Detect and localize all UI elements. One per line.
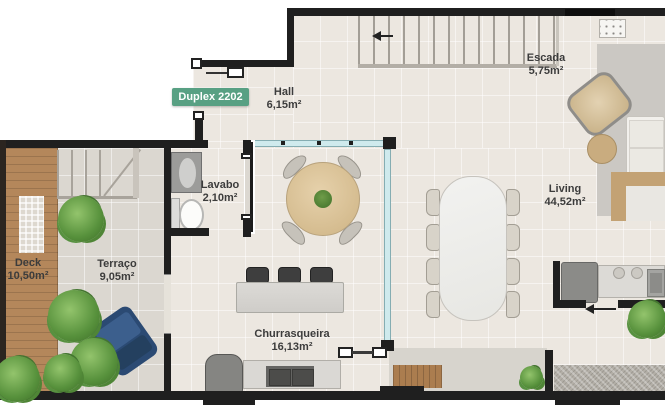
lavabo-door	[245, 158, 250, 219]
cooktop-inner	[650, 273, 662, 293]
room-name: Escada	[527, 52, 566, 65]
wall-left-top	[0, 140, 208, 148]
wall-hall-top	[193, 60, 294, 67]
wall-kitchen-stub	[553, 261, 560, 308]
room-label-terraco: Terraço 9,05m²	[97, 258, 137, 284]
wall-end-cap	[193, 111, 204, 120]
wood-bench	[393, 365, 442, 388]
room-label-lavabo: Lavabo 2,10m²	[201, 179, 240, 205]
glass-track-dot	[317, 141, 321, 145]
sink-basin	[292, 369, 314, 386]
wall-lavabo-bottom	[164, 228, 209, 236]
room-label-deck: Deck 10,50m²	[8, 257, 49, 283]
plant	[48, 290, 100, 342]
wall-hall-stub	[195, 118, 203, 148]
glass-corner-post	[383, 137, 396, 149]
console-table-side	[611, 172, 626, 221]
dining-chair	[426, 291, 440, 318]
bar-counter	[236, 282, 344, 313]
fridge	[561, 262, 598, 303]
cooktop	[647, 269, 665, 297]
sofa	[626, 116, 665, 176]
table-plant	[314, 190, 332, 208]
room-name: Lavabo	[201, 179, 240, 192]
deck-mat	[19, 196, 44, 253]
room-area: 44,52m²	[545, 196, 586, 209]
wall-end-cap	[241, 214, 252, 220]
wall-lavabo-right-bottom	[243, 219, 251, 237]
granite-counter	[554, 365, 665, 391]
lavabo-vanity	[171, 152, 202, 193]
entry-door-line	[206, 72, 228, 74]
room-label-living: Living 44,52m²	[545, 183, 586, 209]
dining-chair	[506, 189, 520, 216]
glass-track-dot	[349, 141, 353, 145]
room-area: 6,15m²	[267, 99, 302, 112]
plant	[628, 300, 665, 338]
room-name: Living	[545, 183, 586, 196]
unit-badge: Duplex 2202	[172, 88, 249, 106]
plant	[44, 354, 82, 392]
wall-patio-piece	[380, 386, 424, 395]
floor-plan: Duplex 2202 Hall 6,15m² Escada 5,75m² La…	[0, 0, 665, 405]
marble-table	[439, 176, 507, 321]
terrace-door	[164, 274, 171, 334]
stairs-direction-arrow	[372, 31, 381, 41]
dining-chair	[506, 291, 520, 318]
door-jamb	[372, 347, 387, 358]
room-name: Hall	[267, 86, 302, 99]
wall-bottom-pier	[555, 397, 620, 405]
door-track	[352, 351, 373, 354]
stairs-arrow-tail	[381, 35, 393, 37]
double-sink	[266, 366, 314, 387]
grill	[205, 354, 243, 393]
room-label-churrasqueira: Churrasqueira 16,13m²	[254, 328, 329, 354]
room-area: 16,13m²	[254, 341, 329, 354]
sink-basin	[269, 369, 291, 386]
wall-patio-vertical	[545, 350, 553, 393]
wall-end-cap	[191, 58, 202, 69]
room-label-escada: Escada 5,75m²	[527, 52, 566, 78]
room-label-hall: Hall 6,15m²	[267, 86, 302, 112]
counter-sink	[631, 267, 643, 279]
room-area: 2,10m²	[201, 192, 240, 205]
wall-hall-corner	[287, 8, 294, 67]
room-name: Terraço	[97, 258, 137, 271]
pouf	[587, 134, 617, 164]
counter-sink	[613, 267, 625, 279]
wall-end-cap	[241, 153, 252, 159]
wall-bottom-pier	[203, 397, 255, 405]
room-name: Churrasqueira	[254, 328, 329, 341]
glass-wall-vertical	[384, 149, 391, 345]
plant	[58, 196, 104, 242]
room-name: Deck	[8, 257, 49, 270]
dining-chair	[426, 189, 440, 216]
wall-top-recess	[565, 9, 615, 16]
door-jamb	[338, 347, 353, 358]
console-inner-pad	[626, 186, 665, 221]
dining-chair	[426, 224, 440, 251]
entry-door-leaf	[227, 67, 244, 78]
plant	[520, 366, 543, 389]
glass-track-dot	[281, 141, 285, 145]
wall-terrace-divider	[164, 140, 171, 393]
sofa-cushion	[629, 120, 664, 148]
room-area: 5,75m²	[527, 65, 566, 78]
lavabo-sink-basin	[179, 158, 196, 188]
stairs-lower-wall	[133, 148, 139, 198]
dining-chair	[506, 224, 520, 251]
sofa-cushion	[629, 148, 664, 175]
wall-control-panel	[599, 19, 626, 38]
room-area: 9,05m²	[97, 271, 137, 284]
room-area: 10,50m²	[8, 270, 49, 283]
stairs-lower-treads	[57, 150, 107, 197]
dining-chair	[426, 258, 440, 285]
dining-chair	[506, 258, 520, 285]
door-arrow-tail	[592, 308, 616, 310]
